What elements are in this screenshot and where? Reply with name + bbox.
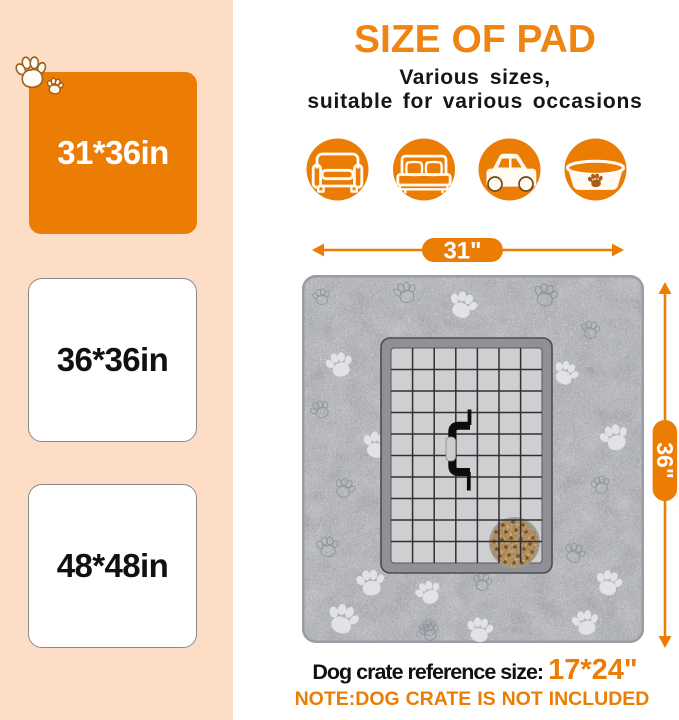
svg-text:31": 31": [443, 238, 481, 265]
svg-text:36": 36": [652, 442, 678, 479]
